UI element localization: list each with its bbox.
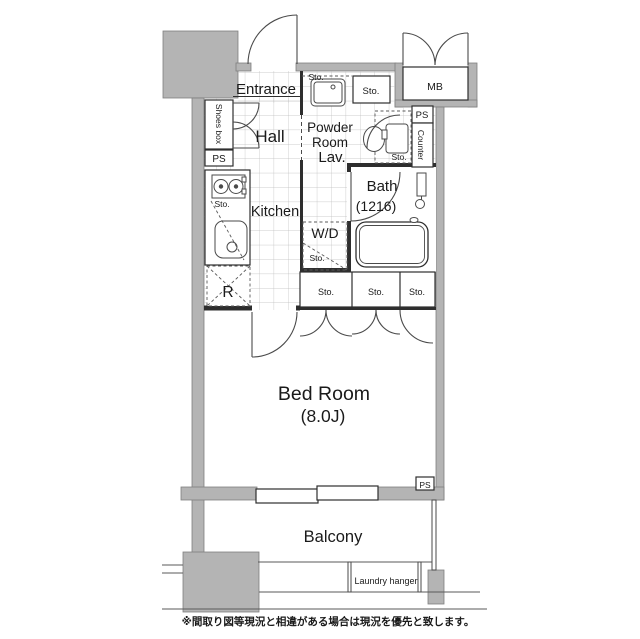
floorplan-drawing: Entrance Hall Shoes box PS Kitchen Sto. … bbox=[0, 0, 640, 639]
bath-size-label: (1216) bbox=[356, 198, 396, 214]
storage-label-toilet: Sto. bbox=[391, 152, 406, 162]
storage-label-row2: Sto. bbox=[368, 287, 384, 297]
bedroom-label: Bed Room bbox=[278, 383, 370, 405]
storage-label-wd: Sto. bbox=[309, 253, 324, 263]
stove-icon bbox=[212, 175, 246, 198]
shoes-box-label: Shoes box bbox=[214, 104, 224, 145]
laundry-hanger-post bbox=[348, 562, 351, 592]
floorplan-page: Entrance Hall Shoes box PS Kitchen Sto. … bbox=[0, 0, 640, 639]
refrigerator-label: R bbox=[222, 284, 233, 301]
kitchen-label: Kitchen bbox=[251, 204, 299, 220]
entrance-door bbox=[248, 15, 297, 64]
pipe-space-label-hall: PS bbox=[212, 154, 226, 165]
storage-label-row3: Sto. bbox=[409, 287, 425, 297]
lavatory-label: Lav. bbox=[318, 149, 345, 166]
powder-room-label-line2: Room bbox=[312, 135, 348, 150]
bathtub-icon bbox=[356, 222, 428, 267]
entrance-label: Entrance bbox=[236, 81, 296, 98]
pipe-space-label-bedroom: PS bbox=[419, 480, 431, 490]
storage-label-row1: Sto. bbox=[318, 287, 334, 297]
laundry-hanger-post bbox=[418, 562, 421, 592]
pipe-space-label-top: PS bbox=[416, 110, 429, 121]
sliding-window bbox=[256, 486, 378, 503]
laundry-hanger-label: Laundry hanger bbox=[354, 576, 417, 586]
storage-label-powder: Sto. bbox=[363, 86, 380, 97]
kitchen-sink-icon bbox=[215, 221, 247, 258]
washer-dryer-label: W/D bbox=[311, 225, 338, 241]
counter-label: Counter bbox=[416, 130, 426, 160]
storage-label-kitchen: Sto. bbox=[214, 199, 229, 209]
meter-box-doors bbox=[403, 33, 468, 65]
balcony-divider bbox=[432, 500, 436, 570]
bedroom-door bbox=[252, 312, 297, 357]
meter-box-label: MB bbox=[427, 81, 443, 93]
powder-room-label-line1: Powder bbox=[307, 120, 353, 135]
bath-label: Bath bbox=[367, 178, 398, 195]
hall-label: Hall bbox=[255, 127, 284, 146]
storage-label-washbasin: Sto. bbox=[308, 72, 323, 82]
disclaimer-text: ※間取り図等現況と相違がある場合は現況を優先と致します。 bbox=[182, 615, 475, 628]
closet-doors bbox=[300, 310, 433, 343]
balcony-label: Balcony bbox=[304, 528, 363, 546]
bedroom-size-label: (8.0J) bbox=[301, 406, 346, 426]
